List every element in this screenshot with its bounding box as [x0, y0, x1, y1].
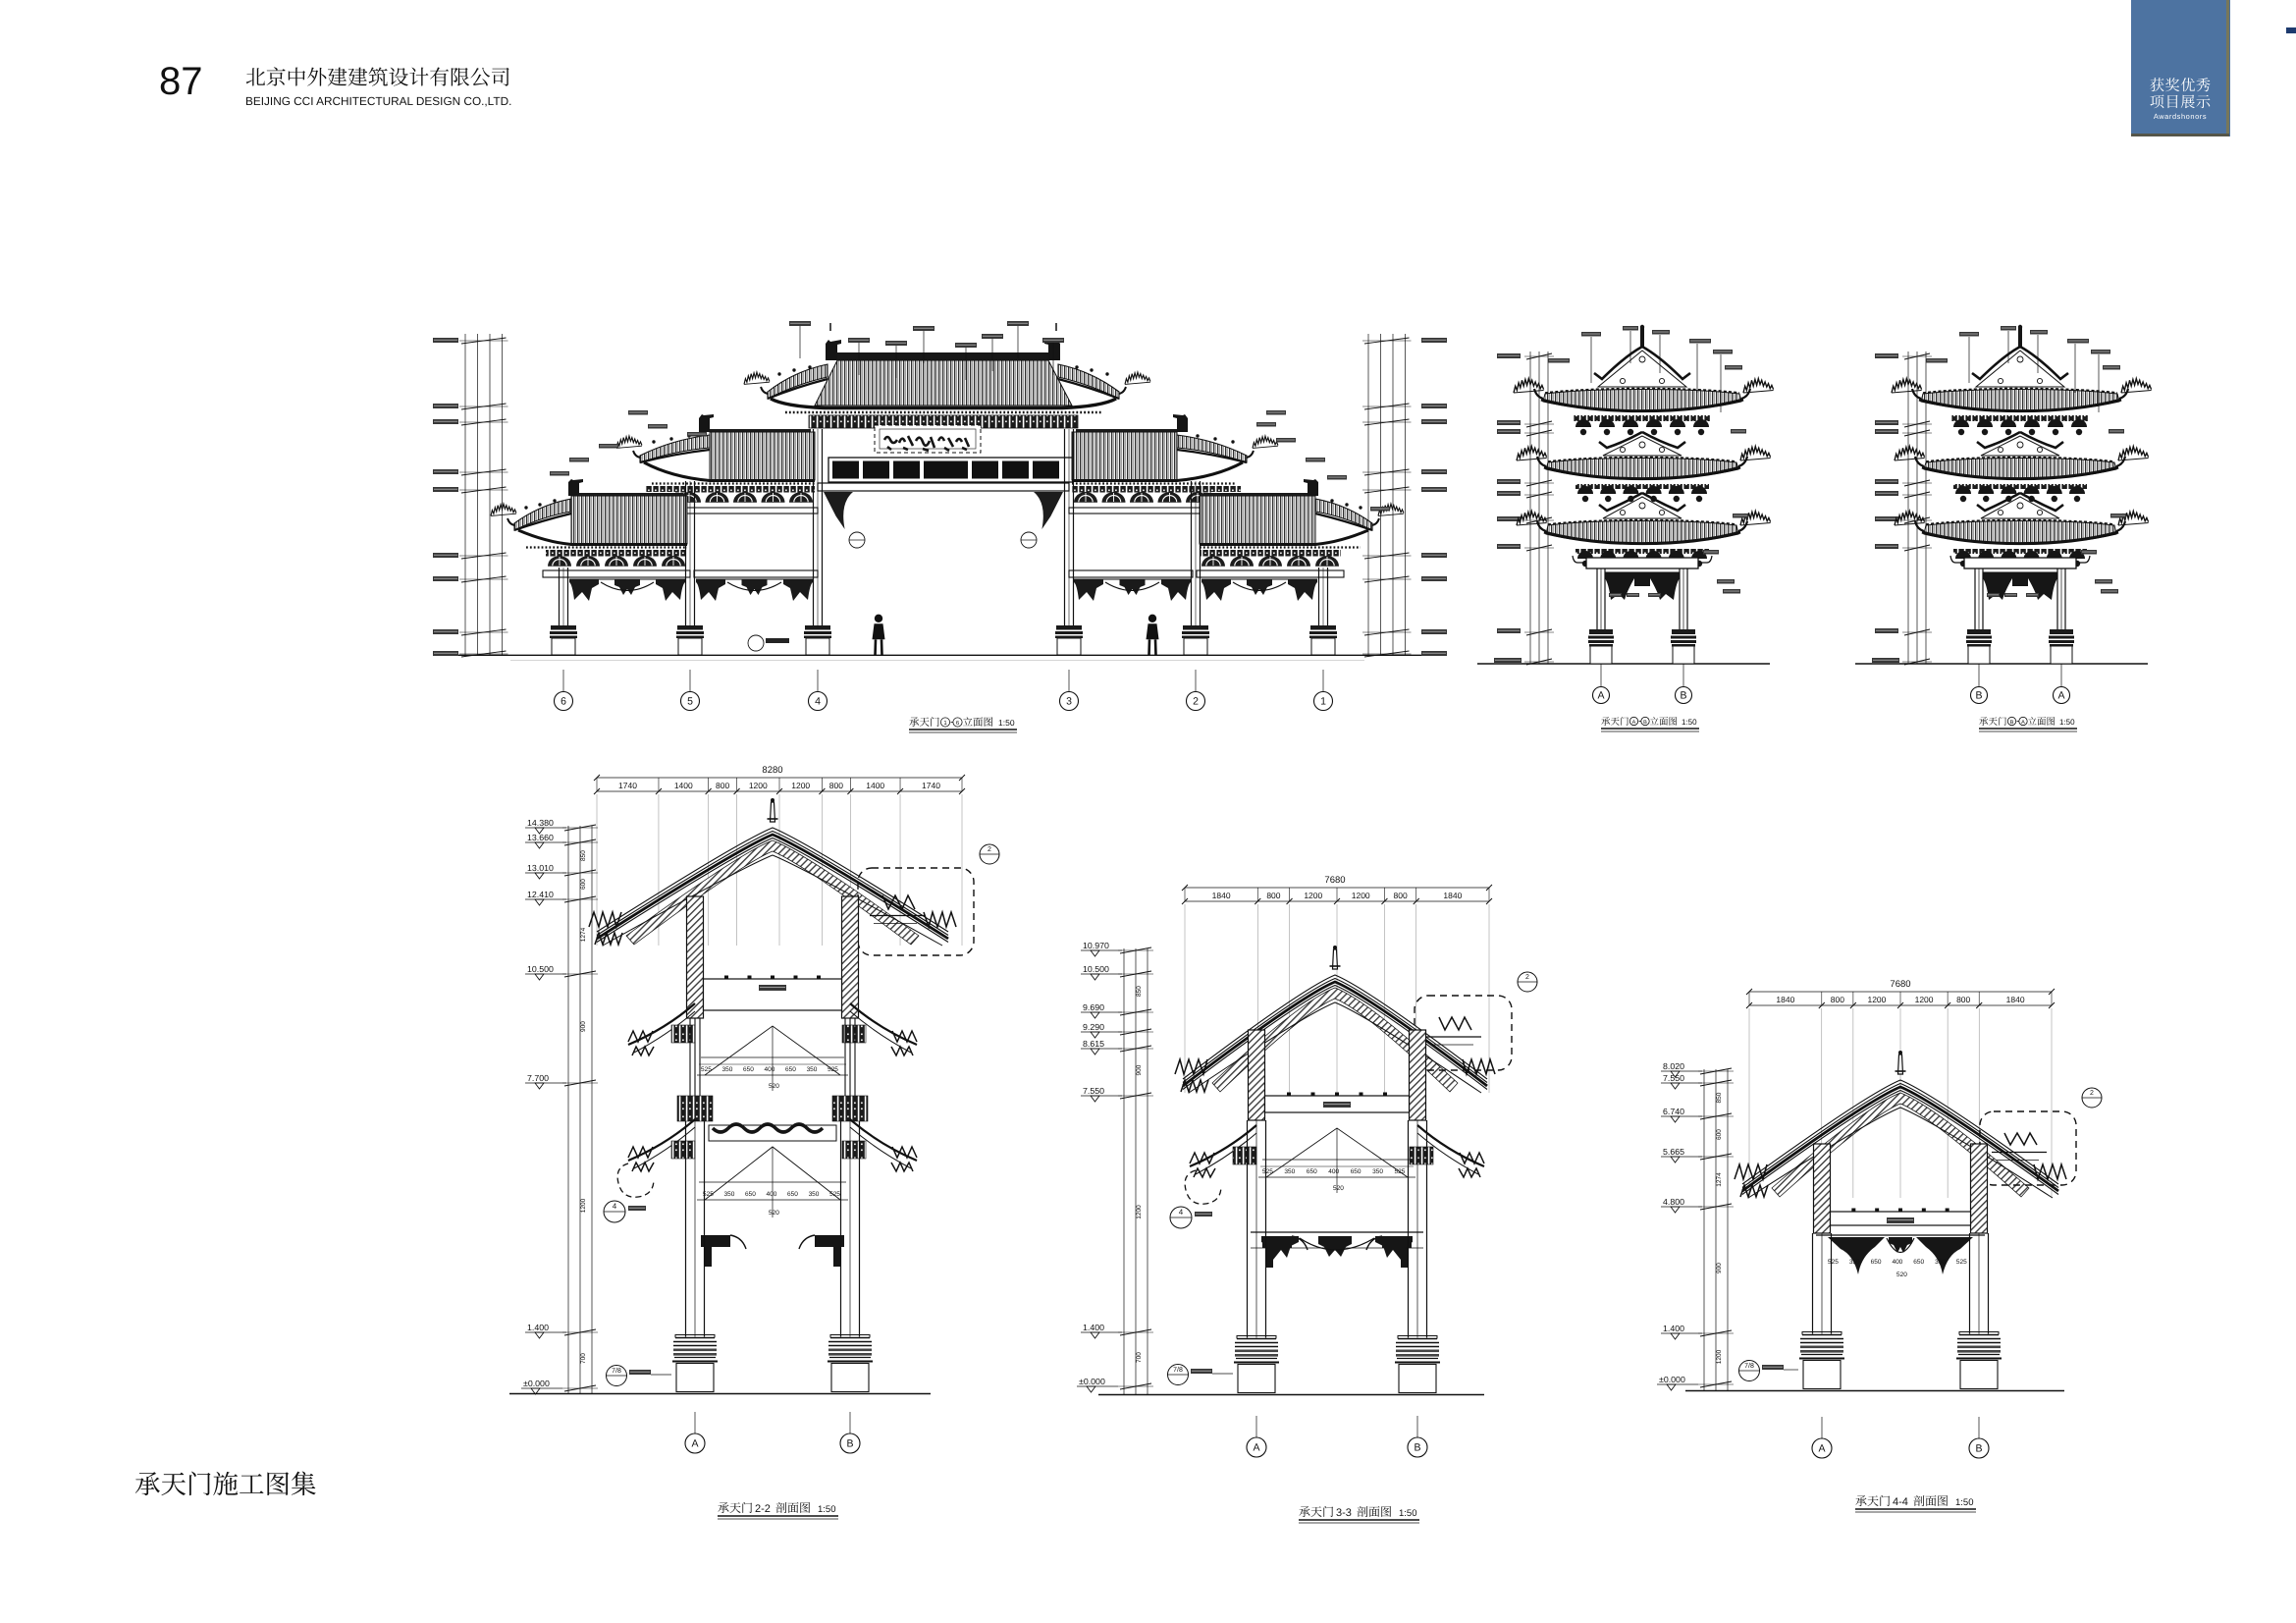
svg-text:525: 525: [828, 1066, 838, 1073]
svg-text:A: A: [1597, 690, 1604, 702]
svg-text:B: B: [2010, 720, 2014, 726]
svg-text:525: 525: [1262, 1168, 1273, 1175]
svg-text:1:50: 1:50: [1955, 1497, 1974, 1508]
svg-text:A: A: [1253, 1442, 1259, 1454]
svg-text:520: 520: [1333, 1185, 1344, 1192]
svg-text:1:50: 1:50: [818, 1504, 836, 1515]
svg-text:525: 525: [1828, 1259, 1839, 1266]
svg-text:A: A: [1818, 1443, 1825, 1455]
svg-text:700: 700: [580, 1353, 587, 1364]
svg-text:12.410: 12.410: [527, 890, 554, 899]
svg-text:800: 800: [1266, 891, 1280, 900]
svg-text:700: 700: [1136, 1352, 1143, 1363]
svg-text:350: 350: [722, 1066, 733, 1073]
svg-text:B: B: [1414, 1442, 1420, 1454]
svg-text:B: B: [1975, 1443, 1982, 1455]
svg-text:B: B: [1643, 720, 1647, 726]
svg-text:1:50: 1:50: [2059, 718, 2075, 727]
svg-text:7680: 7680: [1890, 979, 1910, 990]
svg-text:1200: 1200: [1716, 1349, 1723, 1364]
svg-text:650: 650: [1307, 1168, 1317, 1175]
svg-text:4: 4: [815, 696, 821, 708]
svg-text:400: 400: [767, 1191, 777, 1198]
svg-text:9.690: 9.690: [1083, 1002, 1104, 1012]
svg-text:A: A: [1632, 720, 1636, 726]
svg-text:±0.000: ±0.000: [523, 1379, 550, 1388]
svg-text:1: 1: [1320, 696, 1326, 708]
svg-text:10.970: 10.970: [1083, 941, 1109, 950]
svg-text:400: 400: [1892, 1259, 1902, 1266]
svg-text:8280: 8280: [762, 765, 782, 776]
svg-text:7680: 7680: [1324, 875, 1345, 886]
svg-text:10.500: 10.500: [1083, 964, 1109, 974]
svg-text:650: 650: [1913, 1259, 1924, 1266]
svg-text:850: 850: [1136, 986, 1143, 997]
svg-text:1200: 1200: [1304, 891, 1322, 900]
svg-text:7/8: 7/8: [1173, 1366, 1183, 1374]
svg-text:2-2: 2-2: [755, 1503, 771, 1515]
svg-text:B: B: [1975, 690, 1982, 702]
svg-text:7/8: 7/8: [1744, 1362, 1754, 1370]
svg-text:4: 4: [613, 1202, 617, 1211]
svg-text:7.700: 7.700: [527, 1073, 549, 1083]
svg-text:1.400: 1.400: [1663, 1324, 1684, 1333]
svg-text:1840: 1840: [1212, 891, 1231, 900]
svg-text:2: 2: [988, 846, 991, 853]
svg-text:Awardshonors: Awardshonors: [2154, 112, 2207, 121]
svg-text:350: 350: [807, 1066, 818, 1073]
svg-text:1.400: 1.400: [527, 1323, 549, 1332]
svg-text:650: 650: [787, 1191, 798, 1198]
svg-text:A: A: [2021, 720, 2025, 726]
svg-text:900: 900: [1716, 1263, 1723, 1273]
svg-text:350: 350: [1935, 1259, 1946, 1266]
svg-text:1:50: 1:50: [998, 718, 1015, 728]
svg-text:7.550: 7.550: [1663, 1073, 1684, 1083]
svg-text:7.550: 7.550: [1083, 1086, 1104, 1096]
svg-text:±0.000: ±0.000: [1079, 1377, 1105, 1386]
svg-text:800: 800: [1831, 995, 1844, 1004]
svg-text:800: 800: [716, 781, 729, 790]
svg-text:13.660: 13.660: [527, 833, 554, 842]
svg-text:8.020: 8.020: [1663, 1061, 1684, 1071]
svg-text:800: 800: [829, 781, 843, 790]
svg-text:850: 850: [1716, 1092, 1723, 1103]
svg-text:525: 525: [829, 1191, 840, 1198]
svg-text:5.665: 5.665: [1663, 1147, 1684, 1157]
svg-text:2: 2: [1525, 974, 1529, 981]
svg-text:1200: 1200: [1915, 995, 1934, 1004]
svg-text:1200: 1200: [1136, 1205, 1143, 1219]
svg-text:520: 520: [769, 1210, 779, 1217]
svg-text:1274: 1274: [580, 927, 587, 942]
svg-text:800: 800: [1956, 995, 1970, 1004]
svg-text:350: 350: [809, 1191, 820, 1198]
svg-text:1200: 1200: [1352, 891, 1370, 900]
svg-text:600: 600: [580, 879, 587, 890]
svg-text:2: 2: [2090, 1090, 2094, 1097]
svg-text:13.010: 13.010: [527, 863, 554, 873]
svg-text:5: 5: [687, 696, 693, 708]
svg-text:6: 6: [561, 696, 566, 708]
svg-text:350: 350: [1849, 1259, 1860, 1266]
svg-text:4-4: 4-4: [1893, 1496, 1908, 1508]
svg-text:1: 1: [943, 720, 947, 727]
svg-text:B: B: [1680, 690, 1686, 702]
svg-text:8.615: 8.615: [1083, 1039, 1104, 1049]
svg-text:1840: 1840: [1443, 891, 1462, 900]
svg-text:1200: 1200: [580, 1198, 587, 1213]
svg-text:±0.000: ±0.000: [1659, 1375, 1685, 1384]
svg-text:650: 650: [1871, 1259, 1882, 1266]
svg-text:1274: 1274: [1716, 1172, 1723, 1187]
svg-text:1:50: 1:50: [1399, 1508, 1417, 1519]
svg-text:14.380: 14.380: [527, 818, 554, 828]
svg-text:3-3: 3-3: [1336, 1507, 1352, 1519]
svg-text:525: 525: [1395, 1168, 1406, 1175]
svg-text:650: 650: [785, 1066, 796, 1073]
svg-text:1:50: 1:50: [1682, 718, 1697, 727]
svg-text:400: 400: [765, 1066, 775, 1073]
svg-text:87: 87: [159, 60, 203, 103]
svg-text:850: 850: [580, 850, 587, 861]
svg-text:1200: 1200: [791, 781, 810, 790]
svg-text:800: 800: [1393, 891, 1407, 900]
svg-text:350: 350: [1372, 1168, 1383, 1175]
svg-text:A: A: [2057, 690, 2064, 702]
svg-text:BEIJING CCI ARCHITECTURAL DESI: BEIJING CCI ARCHITECTURAL DESIGN CO.,LTD…: [245, 94, 511, 108]
svg-text:4.800: 4.800: [1663, 1197, 1684, 1207]
svg-text:2: 2: [1193, 696, 1199, 708]
svg-text:1200: 1200: [1867, 995, 1886, 1004]
svg-text:1740: 1740: [618, 781, 637, 790]
svg-text:350: 350: [1284, 1168, 1295, 1175]
svg-text:9.290: 9.290: [1083, 1022, 1104, 1032]
svg-text:525: 525: [701, 1066, 712, 1073]
svg-text:3: 3: [1066, 696, 1072, 708]
svg-text:525: 525: [1956, 1259, 1967, 1266]
svg-text:1740: 1740: [922, 781, 940, 790]
svg-text:520: 520: [1896, 1271, 1907, 1278]
svg-text:7/8: 7/8: [612, 1367, 621, 1375]
svg-text:650: 650: [745, 1191, 756, 1198]
svg-text:6.740: 6.740: [1663, 1107, 1684, 1116]
svg-text:900: 900: [580, 1021, 587, 1032]
svg-text:1400: 1400: [674, 781, 693, 790]
svg-text:1840: 1840: [2006, 995, 2025, 1004]
svg-text:900: 900: [1136, 1064, 1143, 1075]
svg-text:6: 6: [956, 720, 960, 727]
svg-text:650: 650: [1351, 1168, 1362, 1175]
svg-text:B: B: [846, 1438, 853, 1450]
svg-text:4: 4: [1179, 1208, 1184, 1217]
svg-text:650: 650: [743, 1066, 754, 1073]
svg-text:520: 520: [769, 1083, 779, 1090]
svg-text:1840: 1840: [1776, 995, 1794, 1004]
svg-text:10.500: 10.500: [527, 964, 554, 974]
svg-text:1400: 1400: [866, 781, 884, 790]
svg-text:600: 600: [1716, 1129, 1723, 1140]
svg-text:1.400: 1.400: [1083, 1323, 1104, 1332]
svg-text:A: A: [691, 1438, 698, 1450]
svg-text:350: 350: [724, 1191, 735, 1198]
svg-text:400: 400: [1328, 1168, 1339, 1175]
svg-text:1200: 1200: [749, 781, 768, 790]
